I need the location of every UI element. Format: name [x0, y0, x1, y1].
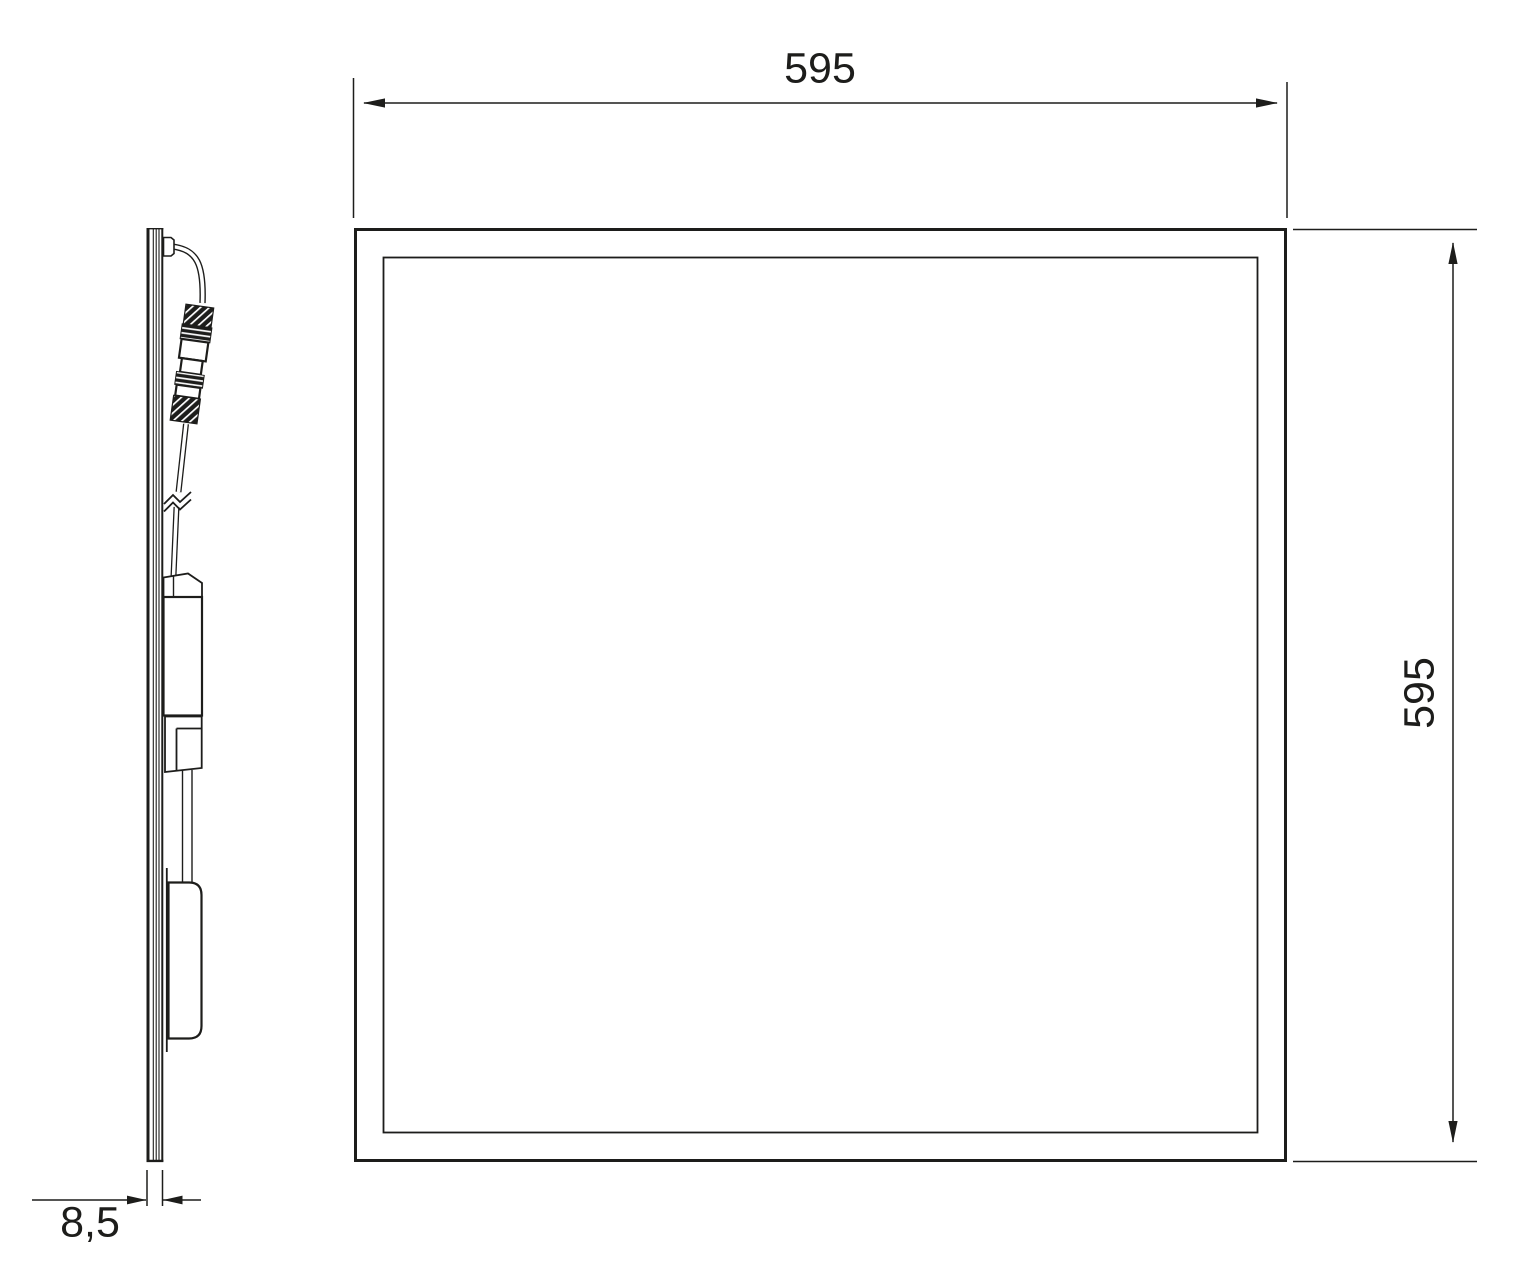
driver-bracket: [165, 717, 202, 773]
dimension-right-height: [1293, 230, 1477, 1162]
driver-cap: [164, 574, 203, 598]
cable-outlet-box: [164, 238, 175, 257]
arrowhead-up-icon: [1448, 242, 1457, 264]
lower-housing: [169, 883, 202, 1039]
driver-box: [164, 574, 203, 773]
supply-cable: [172, 247, 203, 304]
driver-wire: [174, 424, 187, 576]
front-view: [356, 230, 1286, 1161]
arrowhead-right-icon: [1256, 98, 1278, 107]
panel-outer-frame: [356, 230, 1286, 1161]
quick-connector-icon: [169, 304, 215, 424]
connector-strain-relief-bottom: [170, 395, 200, 424]
technical-drawing-canvas: 595 595 8,5: [0, 0, 1539, 1262]
arrowhead-left-icon: [163, 1196, 183, 1205]
driver-body: [164, 597, 203, 716]
arrowhead-down-icon: [1448, 1121, 1457, 1143]
dimension-height-label: 595: [1399, 657, 1442, 729]
lower-wire-pair: [183, 770, 193, 886]
led-panel-dimension-drawing: [0, 0, 1539, 1262]
arrowhead-left-icon: [363, 98, 385, 107]
side-view: [147, 229, 215, 1162]
dimension-width-label: 595: [784, 48, 856, 91]
dimension-top-width: [354, 78, 1288, 218]
dimension-thickness-label: 8,5: [60, 1202, 120, 1245]
side-panel-profile: [147, 229, 164, 1162]
arrowhead-right-icon: [127, 1196, 147, 1205]
